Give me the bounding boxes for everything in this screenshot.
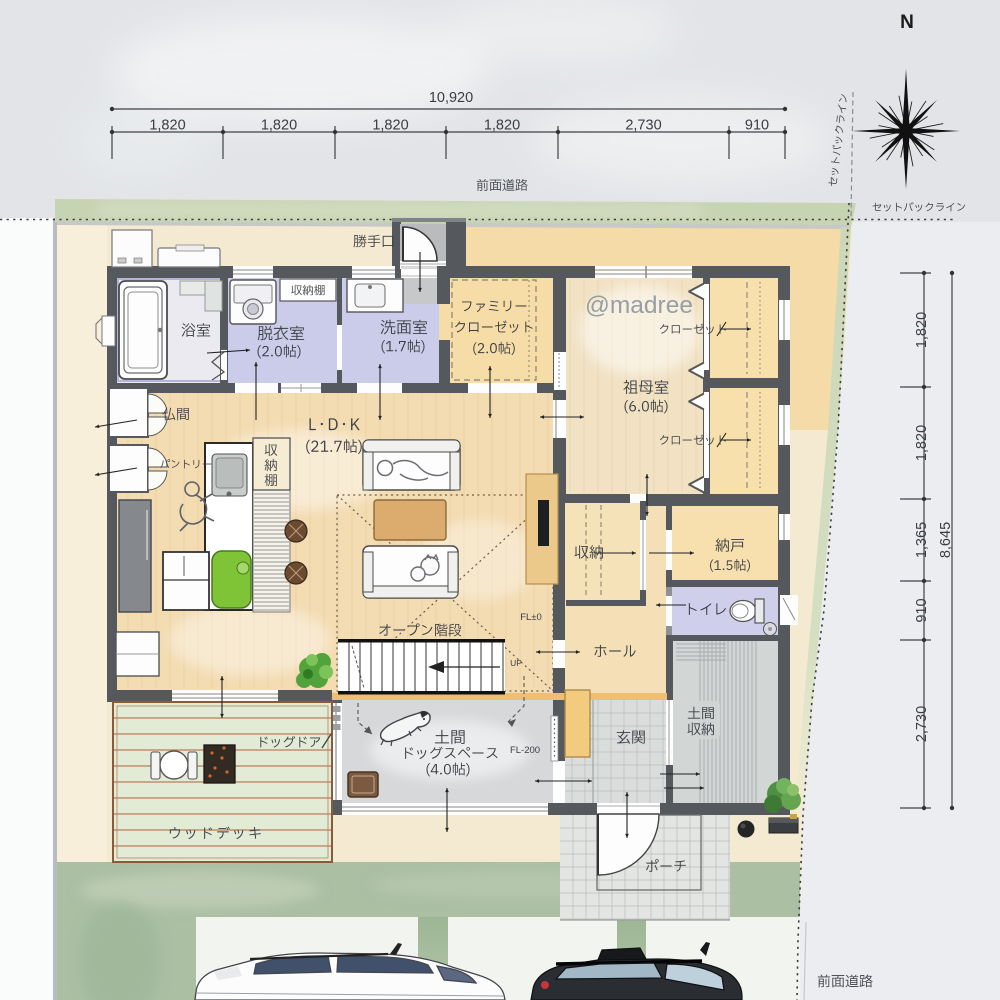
svg-text:UP: UP xyxy=(510,658,522,668)
svg-text:1,820: 1,820 xyxy=(914,312,930,348)
svg-text:2,730: 2,730 xyxy=(914,706,930,742)
svg-text:1,365: 1,365 xyxy=(914,522,930,558)
svg-text:N: N xyxy=(900,12,914,33)
svg-text:910: 910 xyxy=(914,598,930,622)
svg-text:@madree: @madree xyxy=(585,292,693,319)
svg-text:FL-200: FL-200 xyxy=(510,745,540,756)
svg-text:1,820: 1,820 xyxy=(484,118,520,134)
svg-text:FL±0: FL±0 xyxy=(520,612,542,623)
svg-text:1,820: 1,820 xyxy=(149,118,185,134)
svg-text:1,820: 1,820 xyxy=(914,425,930,461)
svg-text:1,820: 1,820 xyxy=(261,118,297,134)
svg-text:2,730: 2,730 xyxy=(625,118,661,134)
svg-text:910: 910 xyxy=(745,118,769,134)
svg-text:8,645: 8,645 xyxy=(938,522,954,558)
svg-text:1,820: 1,820 xyxy=(372,118,408,134)
svg-text:10,920: 10,920 xyxy=(429,90,473,106)
